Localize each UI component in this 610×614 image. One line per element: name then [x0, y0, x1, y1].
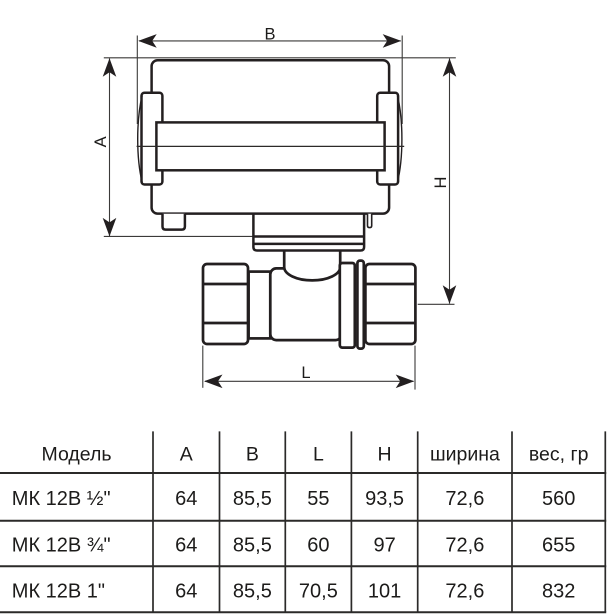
svg-text:ширина: ширина — [430, 444, 500, 466]
svg-text:B: B — [246, 444, 259, 466]
svg-text:72,6: 72,6 — [445, 535, 484, 557]
svg-text:64: 64 — [175, 488, 197, 510]
svg-text:55: 55 — [307, 488, 329, 510]
svg-text:72,6: 72,6 — [445, 581, 484, 603]
svg-text:70,5: 70,5 — [299, 581, 338, 603]
svg-text:A: A — [92, 136, 110, 147]
svg-text:B: B — [264, 25, 275, 43]
svg-text:97: 97 — [373, 535, 395, 557]
svg-text:655: 655 — [542, 535, 575, 557]
svg-text:60: 60 — [307, 535, 329, 557]
svg-text:85,5: 85,5 — [233, 581, 272, 603]
svg-text:МК 12В 1": МК 12В 1" — [12, 581, 105, 603]
svg-text:72,6: 72,6 — [445, 488, 484, 510]
svg-text:H: H — [432, 177, 450, 189]
svg-text:МК 12В ½": МК 12В ½" — [12, 488, 111, 510]
svg-text:Модель: Модель — [42, 444, 112, 466]
svg-text:101: 101 — [368, 581, 401, 603]
svg-text:МК 12В ¾": МК 12В ¾" — [12, 535, 111, 557]
svg-text:85,5: 85,5 — [233, 535, 272, 557]
svg-text:A: A — [180, 444, 193, 466]
svg-text:H: H — [378, 444, 392, 466]
svg-text:64: 64 — [175, 535, 197, 557]
svg-text:64: 64 — [175, 581, 197, 603]
svg-text:85,5: 85,5 — [233, 488, 272, 510]
svg-text:832: 832 — [542, 581, 575, 603]
svg-text:L: L — [301, 364, 310, 382]
svg-text:93,5: 93,5 — [365, 488, 404, 510]
svg-text:L: L — [313, 444, 324, 466]
svg-text:вес, гр: вес, гр — [529, 444, 589, 466]
svg-text:560: 560 — [542, 488, 575, 510]
